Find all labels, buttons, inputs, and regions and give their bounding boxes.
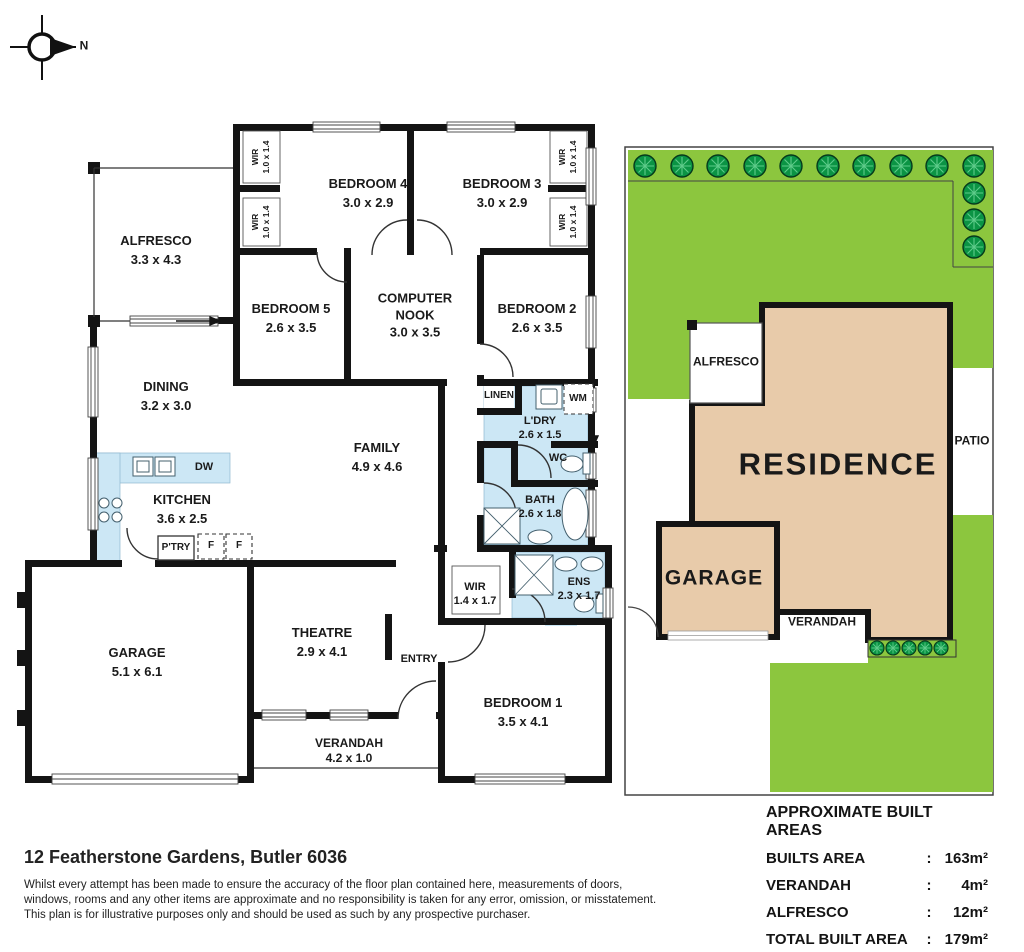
room-name: WIR [557, 140, 568, 173]
table-row: BUILTS AREA : 163m² [766, 850, 988, 867]
site-verandah-label: VERANDAH [788, 615, 856, 630]
room-name: L'DRY [519, 414, 562, 428]
room-name: ENS [558, 575, 601, 589]
table-row: TOTAL BUILT AREA : 179m² [766, 931, 988, 948]
disclaimer-text: Whilst every attempt has been made to en… [24, 878, 656, 923]
room-label-bedroom1: BEDROOM 1 3.5 x 4.1 [484, 693, 563, 731]
room-dims: 3.2 x 3.0 [141, 396, 192, 415]
room-dims: 2.6 x 1.8 [519, 507, 562, 521]
built-areas-title: APPROXIMATE BUILT AREAS [766, 804, 988, 840]
wc-label: WC [549, 451, 567, 465]
row-label: ALFRESCO [766, 904, 922, 921]
washing-machine-label: WM [569, 393, 587, 405]
room-name: FAMILY [352, 438, 403, 457]
room-label-kitchen: KITCHEN 3.6 x 2.5 [153, 490, 211, 528]
row-value: 4m² [936, 877, 988, 894]
room-label-bedroom4: BEDROOM 4 3.0 x 2.9 [329, 174, 408, 212]
room-name: BEDROOM 5 [252, 299, 331, 318]
room-label-alfresco: ALFRESCO 3.3 x 4.3 [120, 231, 192, 269]
room-name: BEDROOM 3 [463, 174, 542, 193]
row-colon: : [922, 904, 936, 921]
room-name: VERANDAH [315, 736, 383, 751]
disclaimer-line: Whilst every attempt has been made to en… [24, 878, 656, 893]
room-name: WIR [557, 205, 568, 238]
room-label-wir-a: WIR 1.0 x 1.4 [250, 140, 272, 173]
room-dims: 3.0 x 2.9 [463, 193, 542, 212]
site-alfresco-label: ALFRESCO [693, 355, 759, 370]
row-colon: : [922, 877, 936, 894]
site-residence-label: RESIDENCE [739, 455, 938, 474]
linen-label: LINEN [484, 390, 514, 402]
room-dims: 1.4 x 1.7 [454, 594, 497, 608]
built-areas-table: APPROXIMATE BUILT AREAS BUILTS AREA : 16… [766, 804, 988, 952]
room-dims: 1.0 x 1.4 [568, 205, 579, 238]
room-dims: 2.6 x 1.5 [519, 428, 562, 442]
fridge-label-2: F [236, 540, 242, 552]
room-dims: 3.6 x 2.5 [153, 509, 211, 528]
row-colon: : [922, 931, 936, 948]
room-label-laundry: L'DRY 2.6 x 1.5 [519, 414, 562, 442]
room-label-ensuite: ENS 2.3 x 1.7 [558, 575, 601, 603]
room-dims: 3.0 x 2.9 [329, 193, 408, 212]
bush-row [868, 640, 956, 657]
room-name: KITCHEN [153, 490, 211, 509]
property-address: 12 Featherstone Gardens, Butler 6036 [24, 847, 347, 868]
row-label: BUILTS AREA [766, 850, 922, 867]
room-dims: 5.1 x 6.1 [108, 662, 165, 681]
room-name: WIR [454, 580, 497, 594]
compass-north-label: N [80, 39, 89, 54]
room-label-wir-b: WIR 1.0 x 1.4 [250, 205, 272, 238]
row-label: TOTAL BUILT AREA [766, 931, 922, 948]
dishwasher-label: DW [195, 460, 213, 474]
pantry-label: P'TRY [162, 542, 191, 554]
north-compass-icon [10, 15, 76, 80]
room-dims: 2.6 x 3.5 [252, 318, 331, 337]
room-dims: 1.0 x 1.4 [261, 205, 272, 238]
room-label-dining: DINING 3.2 x 3.0 [141, 377, 192, 415]
room-dims: 3.3 x 4.3 [120, 250, 192, 269]
room-label-family: FAMILY 4.9 x 4.6 [352, 438, 403, 476]
room-label-bedroom5: BEDROOM 5 2.6 x 3.5 [252, 299, 331, 337]
room-label-computer-nook: COMPUTER NOOK 3.0 x 3.5 [365, 290, 465, 341]
room-dims: 2.9 x 4.1 [292, 642, 352, 661]
room-dims: 4.2 x 1.0 [315, 751, 383, 766]
room-label-garage: GARAGE 5.1 x 6.1 [108, 643, 165, 681]
row-value: 179m² [936, 931, 988, 948]
room-dims: 2.3 x 1.7 [558, 589, 601, 603]
site-garage-label: GARAGE [665, 569, 763, 588]
row-value: 163m² [936, 850, 988, 867]
room-name: GARAGE [108, 643, 165, 662]
table-row: ALFRESCO : 12m² [766, 904, 988, 921]
room-label-wir-d: WIR 1.0 x 1.4 [557, 205, 579, 238]
room-label-bath: BATH 2.6 x 1.8 [519, 493, 562, 521]
room-label-theatre: THEATRE 2.9 x 4.1 [292, 623, 352, 661]
room-name: DINING [141, 377, 192, 396]
row-colon: : [922, 850, 936, 867]
room-label-wir-c: WIR 1.0 x 1.4 [557, 140, 579, 173]
room-dims: 1.0 x 1.4 [568, 140, 579, 173]
site-patio-label: PATIO [955, 434, 990, 449]
room-name: ALFRESCO [120, 231, 192, 250]
room-dims: 3.0 x 3.5 [365, 324, 465, 341]
room-label-wir-master: WIR 1.4 x 1.7 [454, 580, 497, 608]
row-label: VERANDAH [766, 877, 922, 894]
room-dims: 2.6 x 3.5 [498, 318, 577, 337]
disclaimer-line: windows, rooms and any other items are a… [24, 893, 656, 908]
disclaimer-line: This plan is for illustrative purposes o… [24, 908, 656, 923]
room-dims: 3.5 x 4.1 [484, 712, 563, 731]
room-name: BEDROOM 4 [329, 174, 408, 193]
room-dims: 4.9 x 4.6 [352, 457, 403, 476]
room-name: BATH [519, 493, 562, 507]
room-dims: 1.0 x 1.4 [261, 140, 272, 173]
room-label-bedroom2: BEDROOM 2 2.6 x 3.5 [498, 299, 577, 337]
room-name: WIR [250, 140, 261, 173]
row-value: 12m² [936, 904, 988, 921]
room-label-bedroom3: BEDROOM 3 3.0 x 2.9 [463, 174, 542, 212]
room-label-verandah: VERANDAH 4.2 x 1.0 [315, 736, 383, 766]
room-name: COMPUTER NOOK [365, 290, 465, 324]
floorplan-page: N BEDROOM 4 3.0 x 2.9 BEDROOM 3 3.0 x 2.… [0, 0, 1024, 952]
fridge-label-1: F [208, 540, 214, 552]
table-row: VERANDAH : 4m² [766, 877, 988, 894]
room-name: THEATRE [292, 623, 352, 642]
room-name: BEDROOM 2 [498, 299, 577, 318]
room-name: WIR [250, 205, 261, 238]
entry-label: ENTRY [401, 652, 438, 666]
room-name: BEDROOM 1 [484, 693, 563, 712]
